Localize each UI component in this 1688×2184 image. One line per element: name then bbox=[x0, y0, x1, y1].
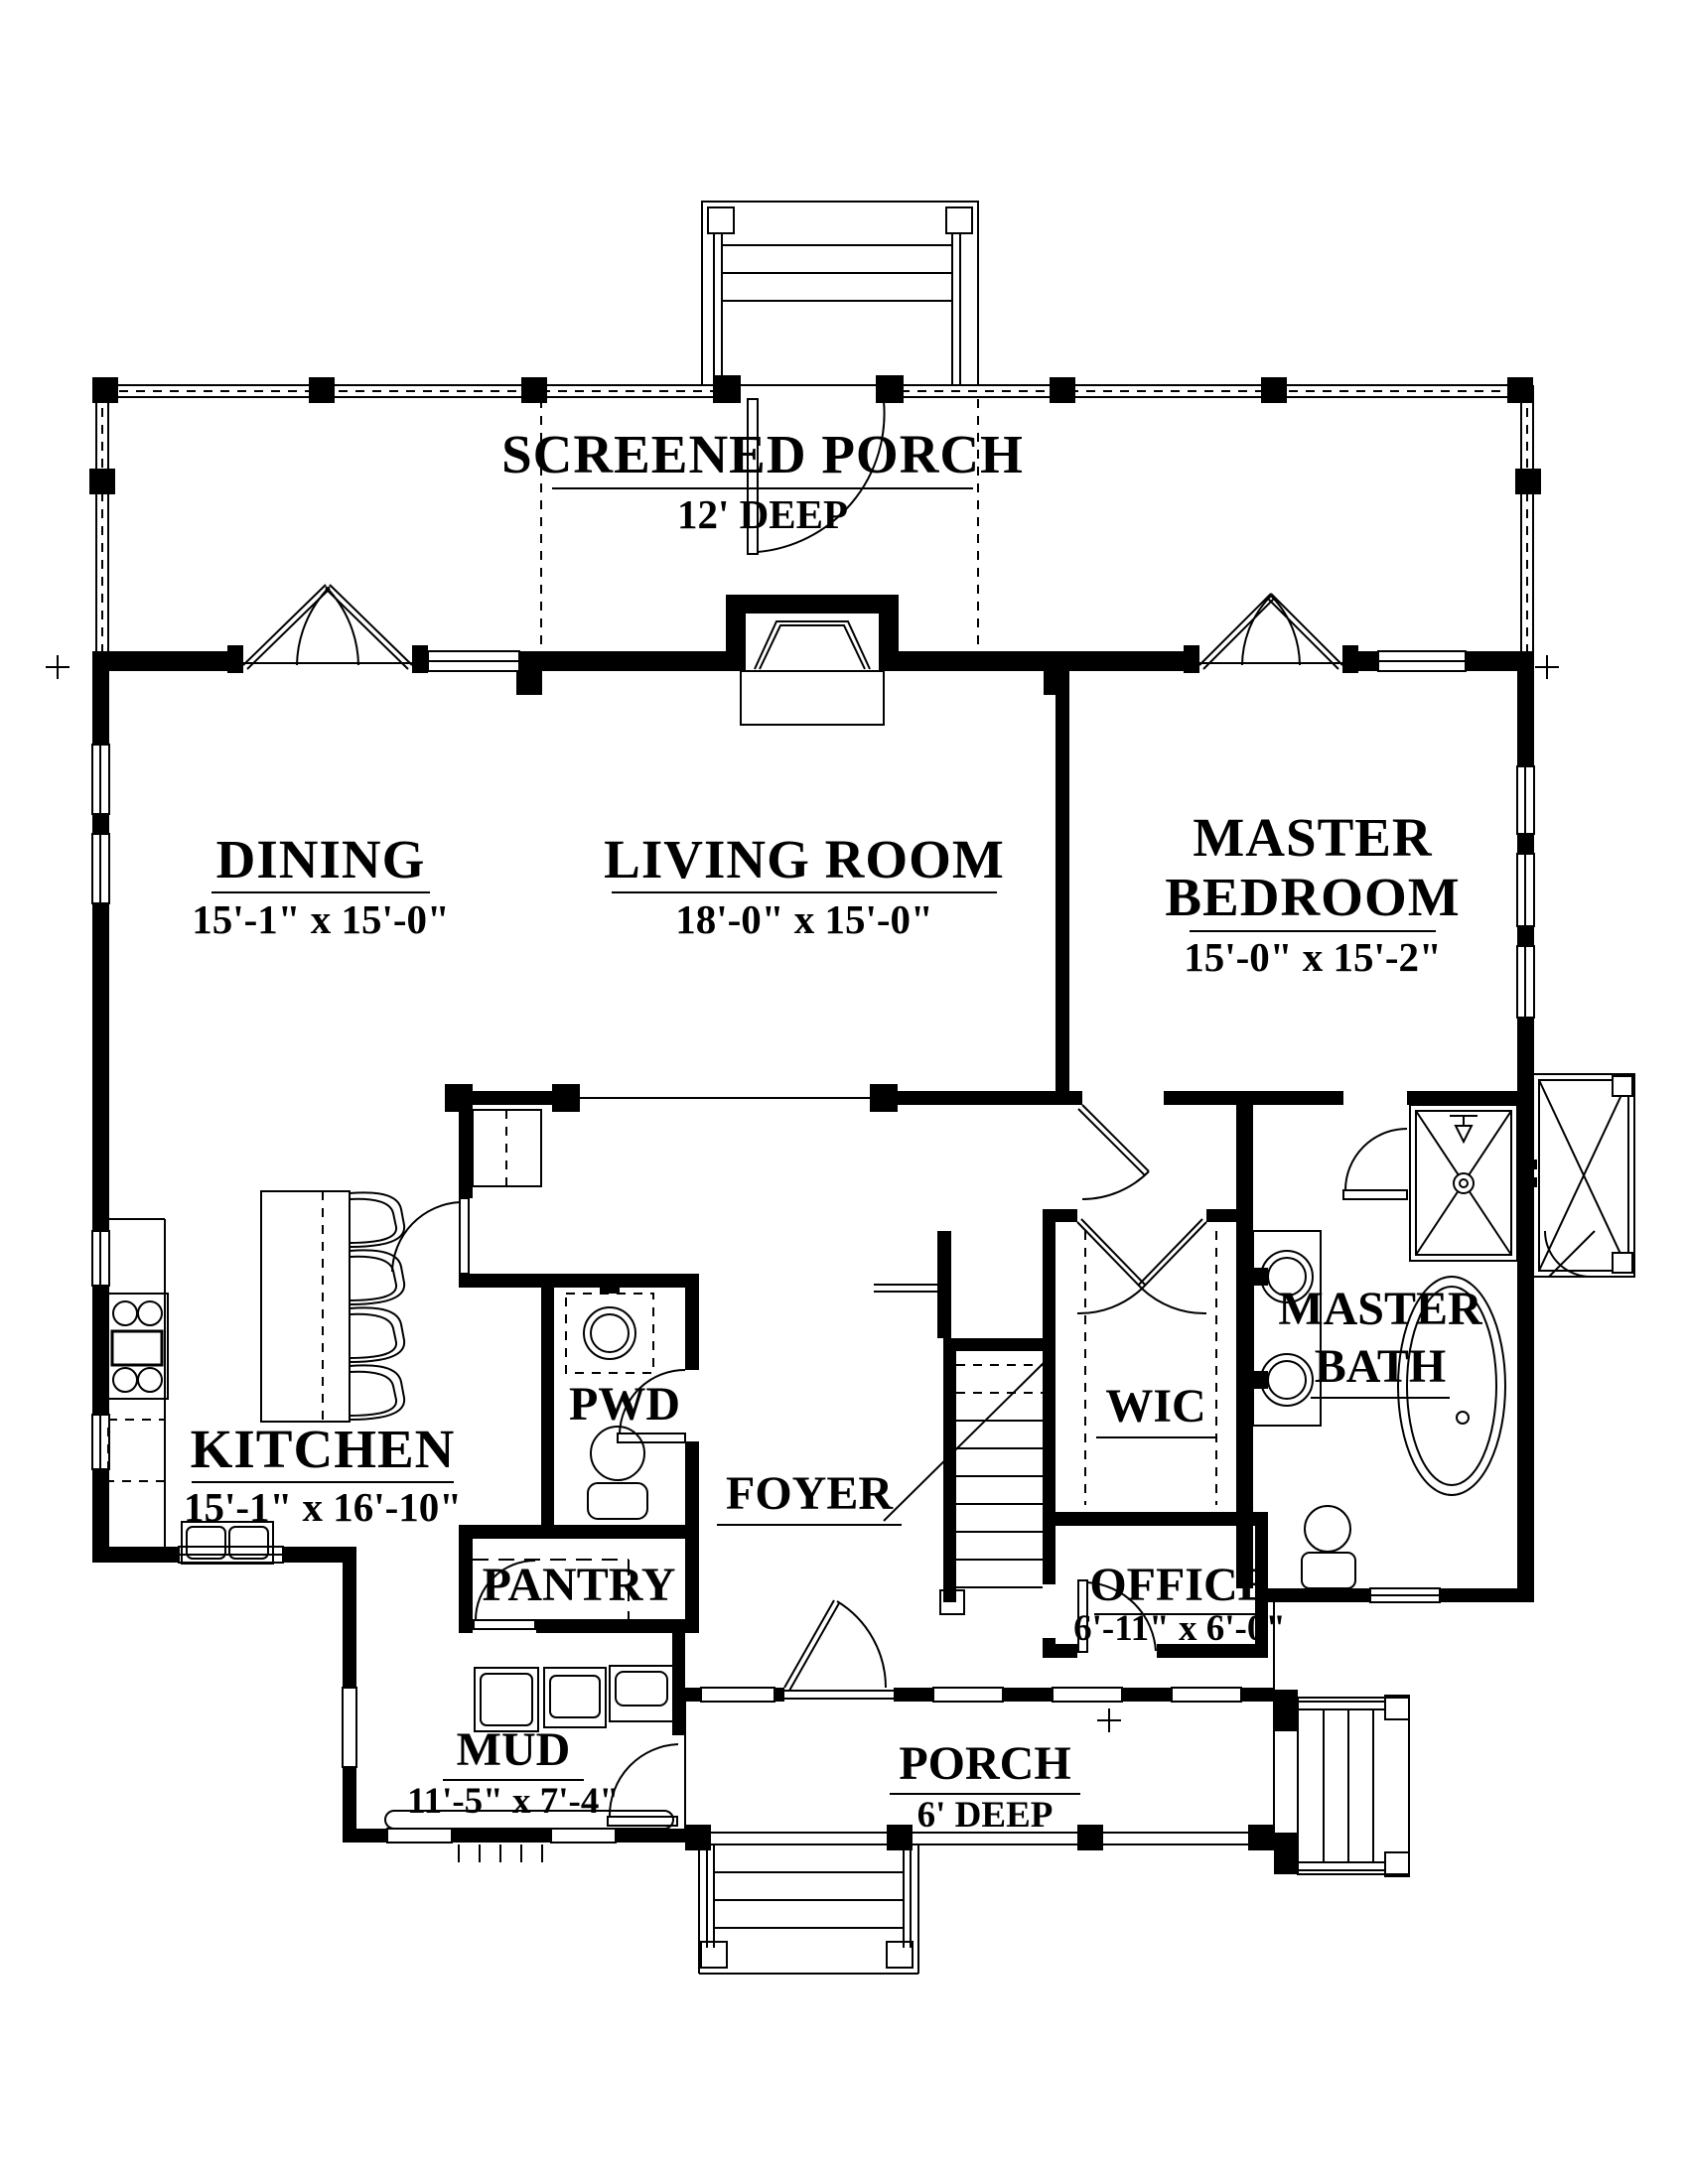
room-dims: 6'-11" x 6'-0" bbox=[1073, 1608, 1286, 1649]
room-label-living-room: LIVING ROOM 18'-0" x 15'-0" bbox=[604, 829, 1005, 942]
front-door bbox=[784, 1600, 886, 1691]
front-porch-stairs bbox=[699, 1844, 918, 1974]
room-dims: 12' DEEP bbox=[677, 491, 848, 537]
room-name: LIVING ROOM bbox=[604, 829, 1005, 889]
room-name-line1: MASTER bbox=[1193, 807, 1433, 868]
room-label-master-bedroom: MASTER BEDROOM 15'-0" x 15'-2" bbox=[1165, 807, 1460, 980]
room-label-office: OFFICE 6'-11" x 6'-0" bbox=[1073, 1559, 1286, 1649]
room-dims: 18'-0" x 15'-0" bbox=[675, 896, 933, 942]
kitchen-hall-door bbox=[392, 1198, 469, 1274]
room-dims: 15'-1" x 16'-10" bbox=[184, 1484, 462, 1530]
room-label-screened-porch: SCREENED PORCH 12' DEEP bbox=[501, 424, 1024, 537]
room-name: OFFICE bbox=[1089, 1559, 1269, 1611]
room-name: DINING bbox=[216, 829, 426, 889]
french-doors-right bbox=[1199, 594, 1342, 669]
floor-plan-sheet: SCREENED PORCH 12' DEEP DINING 15'-1" x … bbox=[0, 0, 1688, 2184]
side-porch-stairs bbox=[1274, 1690, 1409, 1876]
room-name-line1: MASTER bbox=[1278, 1283, 1483, 1335]
room-label-pantry: PANTRY bbox=[483, 1559, 676, 1611]
room-name: WIC bbox=[1105, 1380, 1205, 1433]
dishwasher-icon bbox=[108, 1420, 165, 1481]
room-name: FOYER bbox=[726, 1467, 894, 1520]
room-label-master-bath: MASTER BATH bbox=[1278, 1283, 1483, 1398]
room-name: SCREENED PORCH bbox=[501, 424, 1024, 484]
dryer-icon bbox=[544, 1668, 606, 1727]
room-label-dining: DINING 15'-1" x 15'-0" bbox=[192, 829, 450, 942]
top-entry-stairs bbox=[702, 202, 978, 385]
fridge-icon bbox=[473, 1110, 541, 1186]
mud-sink-icon bbox=[610, 1666, 673, 1721]
room-label-pwd: PWD bbox=[569, 1378, 680, 1431]
room-label-wic: WIC bbox=[1096, 1380, 1215, 1437]
room-name: PORCH bbox=[899, 1737, 1070, 1790]
master-bath-door bbox=[1343, 1129, 1407, 1199]
floor-plan-drawing: SCREENED PORCH 12' DEEP DINING 15'-1" x … bbox=[0, 0, 1688, 2184]
room-dims: 6' DEEP bbox=[917, 1795, 1054, 1836]
staircase bbox=[884, 1346, 1051, 1614]
washer-icon bbox=[475, 1668, 538, 1731]
outdoor-shower bbox=[1525, 1074, 1634, 1277]
shower-icon bbox=[1410, 1105, 1517, 1261]
pwd-sink-icon bbox=[566, 1281, 653, 1373]
room-label-foyer: FOYER bbox=[717, 1467, 902, 1525]
room-dims: 15'-1" x 15'-0" bbox=[192, 896, 450, 942]
room-label-kitchen: KITCHEN 15'-1" x 16'-10" bbox=[184, 1419, 462, 1530]
french-doors-left bbox=[243, 585, 412, 669]
master-bedroom-door bbox=[1078, 1105, 1149, 1199]
room-dims: 15'-0" x 15'-2" bbox=[1184, 934, 1442, 980]
room-label-porch: PORCH 6' DEEP bbox=[890, 1737, 1080, 1836]
room-name: KITCHEN bbox=[191, 1419, 456, 1479]
kitchen-island bbox=[261, 1191, 350, 1422]
range-icon bbox=[106, 1294, 168, 1399]
wic-double-doors bbox=[1077, 1219, 1206, 1313]
room-name: MUD bbox=[457, 1723, 571, 1776]
fireplace-icon bbox=[726, 595, 899, 725]
room-name-line2: BATH bbox=[1315, 1340, 1446, 1393]
room-name-line2: BEDROOM bbox=[1165, 867, 1460, 927]
room-dims: 11'-5" x 7'-4" bbox=[407, 1781, 620, 1822]
bath-toilet-icon bbox=[1302, 1506, 1355, 1588]
bar-stools bbox=[350, 1192, 404, 1420]
room-label-mud: MUD 11'-5" x 7'-4" bbox=[407, 1723, 620, 1822]
